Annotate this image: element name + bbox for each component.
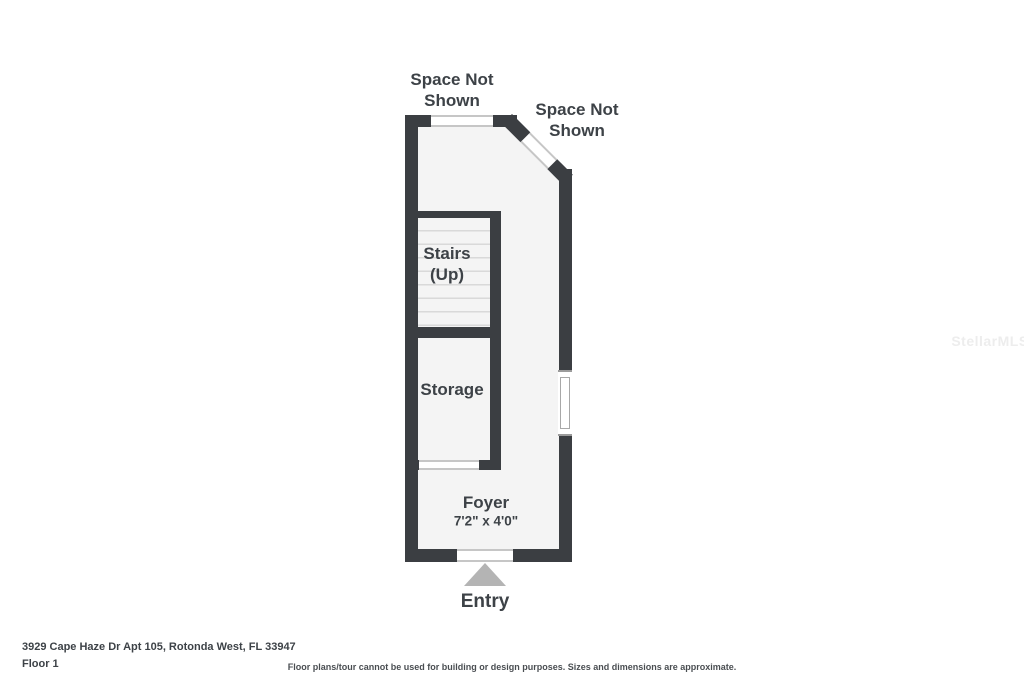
opening-top-space-not-shown [431, 115, 493, 127]
label-stairs-line2: (Up) [423, 264, 470, 285]
wall-left [405, 115, 418, 562]
label-stairs: Stairs (Up) [423, 243, 470, 285]
label-stairs-line1: Stairs [423, 243, 470, 264]
label-space-not-shown-right: Space Not Shown [522, 99, 632, 141]
label-storage: Storage [420, 380, 483, 400]
label-foyer-dimensions: 7'2" x 4'0" [454, 514, 518, 529]
wall-stairs-top [418, 211, 501, 218]
label-foyer: Foyer [463, 493, 509, 513]
label-space-not-shown-top: Space Not Shown [397, 69, 507, 111]
window-pane [560, 377, 570, 429]
wall-interior-vertical [490, 211, 501, 470]
stellar-mls-watermark: StellarMLS [951, 333, 1024, 349]
address-text: 3929 Cape Haze Dr Apt 105, Rotonda West,… [22, 641, 296, 653]
opening-storage-door [419, 460, 479, 470]
entry-arrow-icon [464, 563, 506, 586]
disclaimer-text: Floor plans/tour cannot be used for buil… [288, 662, 737, 672]
window-right-wall [558, 370, 572, 436]
opening-entry-door [457, 549, 513, 562]
label-entry: Entry [461, 591, 510, 613]
floorplan-canvas: Space Not Shown Space Not Shown Stairs (… [0, 0, 1024, 682]
wall-stairs-storage-divider [418, 327, 501, 338]
wall-right [559, 169, 572, 562]
floor-number-text: Floor 1 [22, 658, 59, 670]
